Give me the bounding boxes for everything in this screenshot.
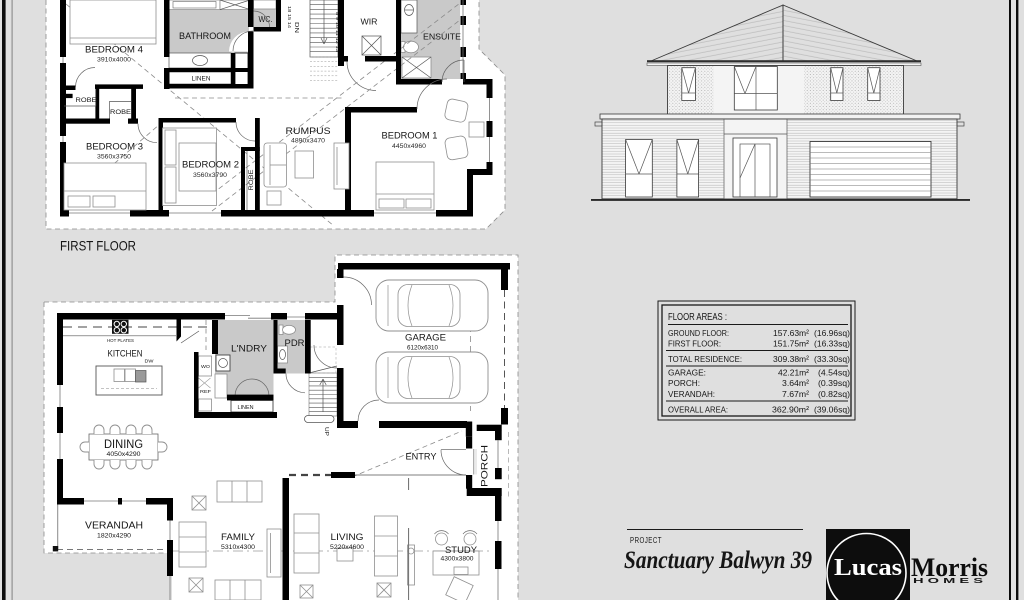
svg-text:STUDY: STUDY — [445, 545, 478, 556]
svg-text:LINEN: LINEN — [238, 405, 254, 411]
svg-text:FIRST FLOOR:: FIRST FLOOR: — [668, 339, 721, 349]
svg-text:HOT PLATES: HOT PLATES — [107, 338, 134, 343]
svg-text:309.38m²: 309.38m² — [773, 354, 809, 364]
svg-text:BATHROOM: BATHROOM — [179, 31, 231, 42]
svg-text:PDR: PDR — [285, 338, 305, 349]
svg-text:6120x6310: 6120x6310 — [407, 345, 438, 352]
svg-text:BEDROOM 3: BEDROOM 3 — [86, 142, 143, 153]
svg-text:(16.96sq): (16.96sq) — [814, 328, 850, 338]
svg-text:GARAGE:: GARAGE: — [668, 368, 706, 378]
svg-text:FIRST FLOOR: FIRST FLOOR — [60, 238, 136, 254]
svg-text:4450x4960: 4450x4960 — [392, 143, 426, 150]
svg-text:Sanctuary Balwyn 39: Sanctuary Balwyn 39 — [624, 547, 812, 574]
svg-text:4300x3800: 4300x3800 — [441, 556, 474, 563]
svg-text:PROJECT: PROJECT — [630, 536, 662, 545]
svg-text:362.90m²: 362.90m² — [772, 405, 809, 415]
svg-text:KITCHEN: KITCHEN — [108, 349, 143, 359]
svg-text:PORCH: PORCH — [480, 445, 490, 487]
svg-text:(39.06sq): (39.06sq) — [814, 405, 850, 415]
svg-text:LIVING: LIVING — [331, 532, 364, 543]
svg-text:DN: DN — [293, 22, 299, 33]
svg-text:Lucas: Lucas — [834, 555, 902, 581]
svg-text:WIR: WIR — [361, 17, 378, 27]
svg-text:PORCH:: PORCH: — [668, 378, 700, 388]
svg-text:ENSUITE: ENSUITE — [423, 32, 461, 42]
svg-text:GARAGE: GARAGE — [405, 333, 446, 344]
svg-text:VERANDAH: VERANDAH — [85, 520, 143, 532]
svg-text:3910x4000: 3910x4000 — [97, 57, 131, 64]
svg-text:(0.82sq): (0.82sq) — [818, 389, 850, 399]
svg-text:42.21m²: 42.21m² — [778, 368, 809, 378]
svg-text:4050x4290: 4050x4290 — [107, 451, 141, 458]
svg-text:DINING: DINING — [104, 439, 143, 451]
svg-text:UP: UP — [323, 427, 329, 437]
svg-text:L'NDRY: L'NDRY — [231, 344, 268, 355]
svg-text:ENTRY: ENTRY — [406, 452, 438, 463]
svg-text:18 15 14: 18 15 14 — [287, 6, 292, 29]
svg-text:3.64m²: 3.64m² — [782, 378, 809, 388]
svg-text:1820x4290: 1820x4290 — [97, 533, 131, 540]
svg-text:(33.30sq): (33.30sq) — [814, 354, 850, 364]
svg-text:ROBE: ROBE — [110, 110, 131, 116]
svg-text:151.75m²: 151.75m² — [773, 339, 809, 349]
svg-text:BEDROOM 4: BEDROOM 4 — [85, 45, 143, 56]
svg-text:WO: WO — [201, 364, 211, 369]
svg-text:LINEN: LINEN — [192, 77, 211, 83]
svg-text:5220x4600: 5220x4600 — [330, 544, 364, 551]
svg-text:FAMILY: FAMILY — [221, 532, 256, 543]
svg-text:BEDROOM 1: BEDROOM 1 — [382, 131, 438, 142]
svg-text:TOTAL RESIDENCE:: TOTAL RESIDENCE: — [668, 354, 742, 364]
svg-text:RUMPUS: RUMPUS — [286, 126, 331, 137]
svg-text:FLOOR AREAS :: FLOOR AREAS : — [668, 312, 727, 323]
svg-text:DW: DW — [145, 359, 155, 364]
svg-text:ROBE: ROBE — [76, 98, 97, 104]
svg-text:H O M E S: H O M E S — [913, 576, 983, 585]
svg-text:157.63m²: 157.63m² — [773, 328, 809, 338]
svg-text:REF: REF — [200, 389, 211, 394]
svg-text:3560x3790: 3560x3790 — [193, 172, 227, 179]
svg-text:GROUND FLOOR:: GROUND FLOOR: — [668, 328, 729, 338]
svg-text:3560x3750: 3560x3750 — [97, 154, 131, 161]
svg-text:5310x4300: 5310x4300 — [221, 544, 255, 551]
svg-text:(16.33sq): (16.33sq) — [814, 339, 850, 349]
svg-text:7.67m²: 7.67m² — [782, 389, 809, 399]
svg-text:ROBE: ROBE — [249, 170, 255, 191]
svg-text:4890x3470: 4890x3470 — [291, 138, 325, 145]
svg-text:VERANDAH:: VERANDAH: — [668, 389, 715, 399]
svg-text:OVERALL AREA:: OVERALL AREA: — [668, 405, 728, 415]
svg-text:(4.54sq): (4.54sq) — [818, 368, 850, 378]
svg-text:BEDROOM 2: BEDROOM 2 — [182, 160, 239, 171]
svg-text:(0.39sq): (0.39sq) — [818, 378, 850, 388]
